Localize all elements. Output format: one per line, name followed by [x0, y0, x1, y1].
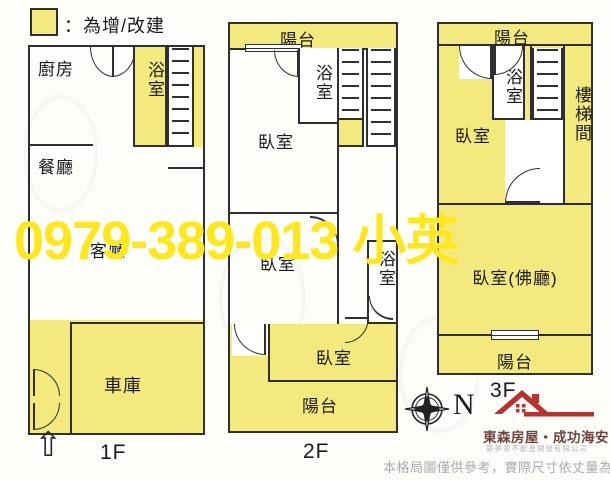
room-label-bedroom-top-3f: 臥室 [455, 122, 491, 147]
brand-house-icon [492, 386, 596, 424]
entrance-arrow-icon: ⇧ [34, 428, 63, 462]
watermark-phone: 0979-389-013 小英 [14, 196, 458, 275]
stairs-3f [532, 48, 563, 120]
brand-subtitle: 築夢家不動產開發有限公司 [486, 443, 606, 454]
balcony-top-3f: 陽台 [439, 24, 591, 46]
wall [268, 324, 270, 382]
floor-label-1f: 1F [100, 441, 127, 465]
room-label-bathroom-3f: 浴室 [500, 68, 525, 106]
room-label-garage: 車庫 [104, 372, 142, 398]
room-label-dining: 餐廳 [38, 153, 74, 178]
compass-icon [404, 386, 450, 432]
room-label-bathroom-1f: 浴室 [142, 61, 167, 99]
stair-landing-highlight [337, 118, 364, 147]
legend-yellow-swatch [30, 8, 58, 36]
door-arc [90, 47, 114, 77]
room-label-stairwell: 樓梯間 [569, 86, 594, 143]
room-label-balcony-bottom-2f: 陽台 [302, 392, 338, 417]
floor-plan-3f: 陽台 浴室 樓梯間 臥室 臥室(佛廳) 陽台 [437, 22, 593, 375]
door-arc [274, 50, 299, 77]
room-label-bedroom-hall: 臥室(佛廳) [439, 264, 591, 289]
room-bathroom-1f: 浴室 [133, 47, 167, 147]
north-label: N [453, 388, 475, 422]
legend-label: ：為增/改建 [64, 12, 165, 38]
wall [168, 167, 203, 169]
stairs-2f-flight2 [366, 48, 396, 147]
disclaimer-text: 本格局圖僅供參考，實際尺寸依丈量為準 [383, 457, 610, 476]
window-icon [491, 330, 539, 340]
room-label-bedroom-bottom-2f: 臥室 [316, 344, 352, 369]
stairs-1f [167, 47, 194, 147]
room-label-bedroom-top-2f: 臥室 [258, 128, 294, 153]
room-label-bathroom-top-2f: 浴室 [310, 64, 335, 102]
wall [563, 46, 565, 203]
room-label-kitchen: 廚房 [38, 55, 74, 80]
stairs-2f-flight1 [337, 48, 364, 120]
wall [270, 380, 396, 382]
room-label-balcony-bottom-3f: 陽台 [439, 348, 591, 373]
floor-plan-image: ：為增/改建 廚房 浴室 餐廳 客廳 車庫 ⇧ 1F 陽台 [0, 0, 610, 480]
wall [30, 144, 93, 146]
room-bathroom-top-2f: 浴室 [298, 48, 339, 124]
floor-label-2f: 2F [303, 440, 330, 464]
wall [439, 203, 591, 205]
